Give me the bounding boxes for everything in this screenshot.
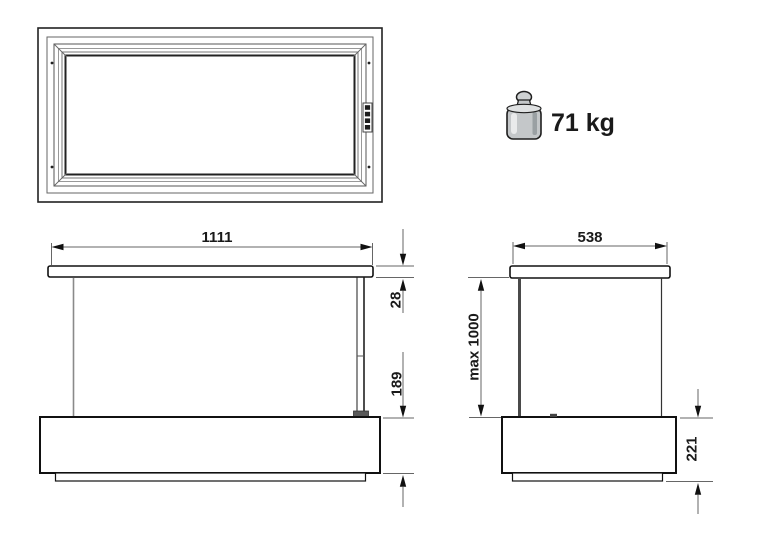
arrowhead-right	[655, 243, 667, 249]
dim-max-extension: max 1000	[466, 278, 510, 418]
dim-width: 1111	[52, 229, 373, 265]
dim-plate-thickness: 28	[376, 229, 414, 313]
front-view: 1111 28 189	[40, 229, 414, 507]
weight-highlight	[511, 113, 517, 134]
technical-drawing: 71 kg 1111 28	[0, 0, 768, 550]
dim-width-label: 1111	[202, 229, 233, 246]
arrowhead-down	[478, 405, 484, 417]
side-bottom-strip	[513, 473, 663, 481]
control-strip	[363, 103, 372, 132]
arrowhead-right	[361, 244, 373, 250]
side-top-plate	[510, 266, 670, 278]
arrowhead-down	[400, 254, 406, 266]
arrowhead-left	[52, 244, 64, 250]
front-bottom-strip	[56, 473, 366, 481]
dim-base-height-label: 221	[684, 436, 701, 461]
side-view: 538 max 1000 221	[466, 229, 714, 514]
top-view	[38, 28, 382, 202]
front-body-box	[40, 417, 380, 473]
arrowhead-down	[400, 406, 406, 418]
arrowhead-up	[695, 483, 701, 495]
front-top-plate	[48, 266, 373, 277]
dim-plate-thickness-label: 28	[388, 292, 405, 309]
control-button	[365, 112, 370, 117]
weight-top-face	[507, 104, 541, 112]
arrowhead-up	[478, 279, 484, 291]
screw-dot	[51, 62, 54, 65]
dim-body-height: 189	[383, 352, 414, 507]
weight-label: 71 kg	[551, 109, 615, 137]
frame-outer-rect	[38, 28, 382, 202]
arrowhead-up	[400, 475, 406, 487]
weight-shade	[533, 112, 538, 135]
weight-badge: 71 kg	[507, 92, 615, 140]
drawing-canvas: 71 kg 1111 28	[0, 0, 768, 550]
weight-icon	[507, 92, 541, 140]
arrowhead-up	[400, 279, 406, 291]
dim-depth-label: 538	[577, 229, 602, 246]
arrowhead-down	[695, 406, 701, 418]
dim-depth: 538	[513, 229, 667, 264]
side-body-box	[502, 417, 676, 473]
screw-dot	[368, 166, 371, 169]
arrowhead-left	[513, 243, 525, 249]
dim-max-extension-label: max 1000	[466, 313, 483, 381]
control-button	[365, 125, 370, 130]
control-button	[365, 118, 370, 123]
screw-dot	[51, 166, 54, 169]
control-button	[365, 105, 370, 110]
screw-dot	[368, 62, 371, 65]
side-top-clip-mark	[550, 414, 557, 417]
